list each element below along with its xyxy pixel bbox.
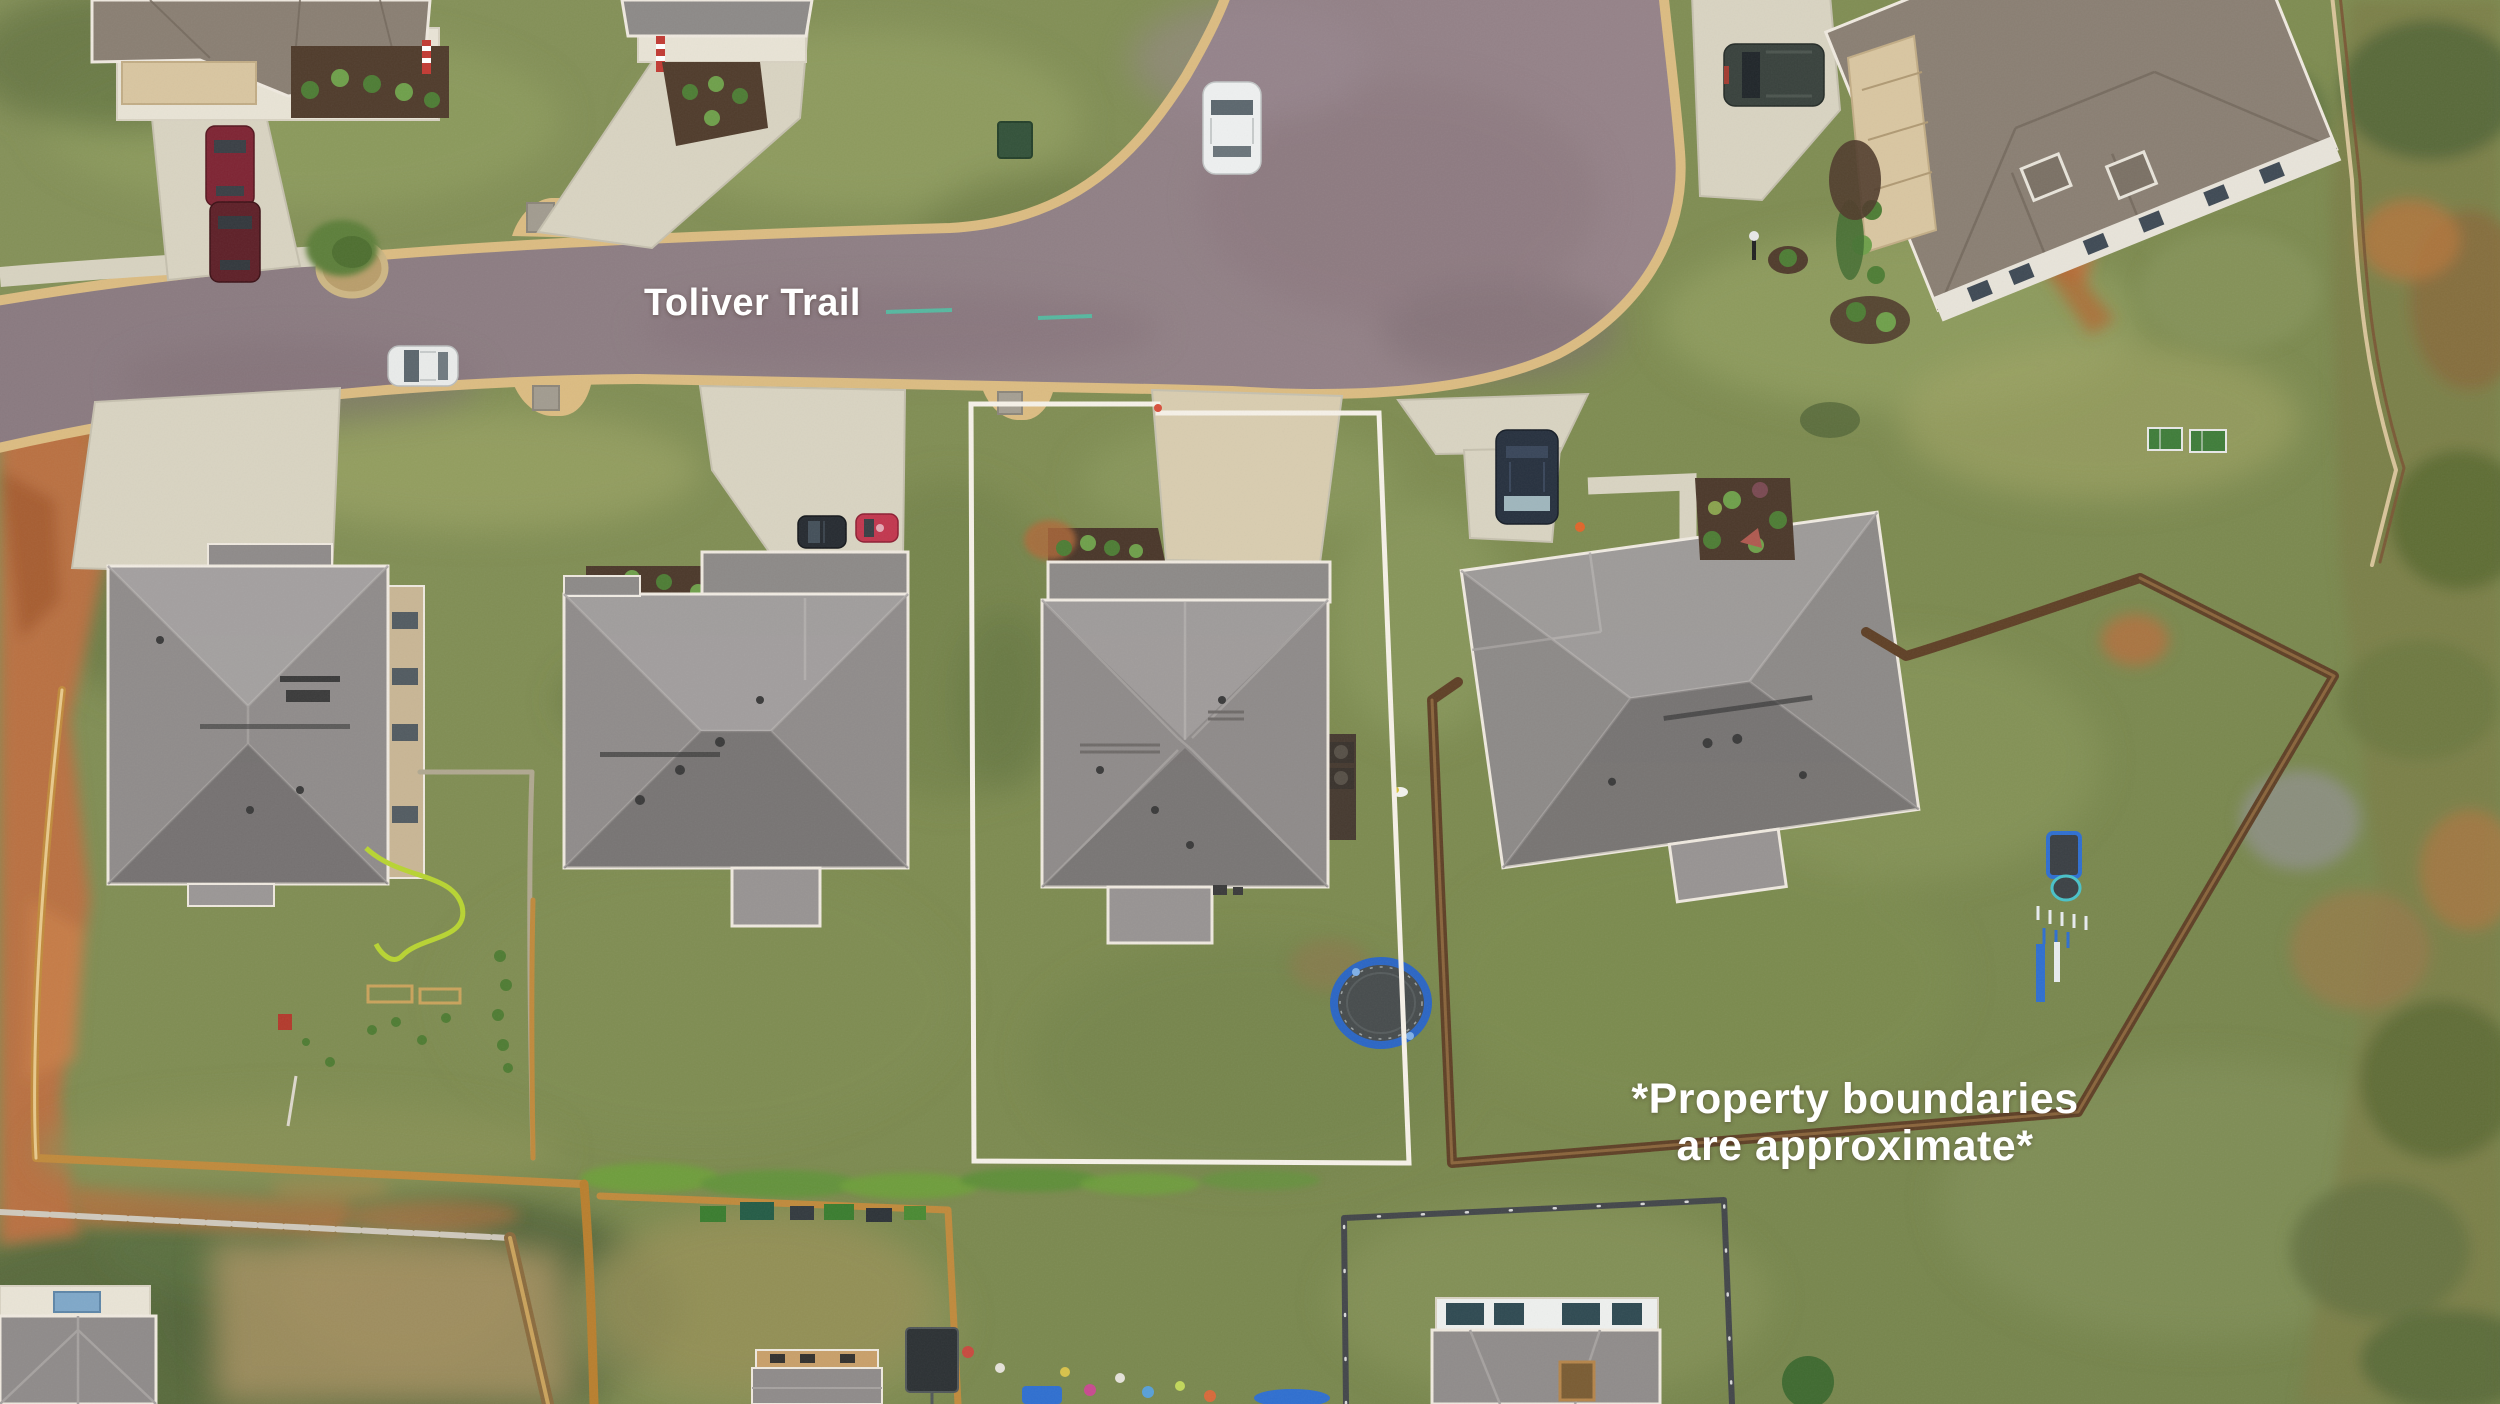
disclaimer-line-2: are approximate* [1631,1123,2078,1170]
disclaimer-line-1: *Property boundaries [1631,1076,2078,1123]
boundary-disclaimer-label: *Property boundaries are approximate* [1631,1076,2078,1170]
aerial-photo: Toliver Trail *Property boundaries are a… [0,0,2500,1404]
aerial-photo-canvas [0,0,2500,1404]
street-name-label: Toliver Trail [644,282,861,325]
photo-grain [0,0,2500,1404]
